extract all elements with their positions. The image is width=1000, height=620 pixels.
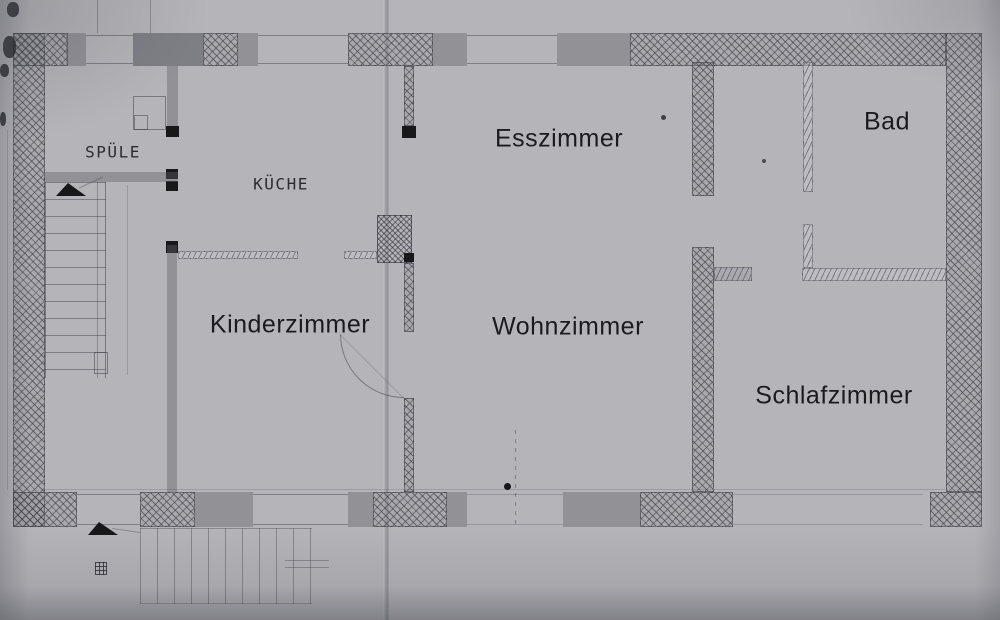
- window-top-4: [433, 33, 467, 66]
- ink-blot: [504, 483, 511, 490]
- room-label-kinderzimmer: Kinderzimmer: [210, 311, 370, 340]
- opening-bottom-door: [253, 494, 348, 525]
- wall-kinder-wohnzimmer: [404, 398, 414, 492]
- stair-rail-line: [285, 567, 329, 568]
- stair-newel: [94, 352, 108, 374]
- exterior-stairs-icon: [140, 528, 312, 604]
- wall-top-seg: [203, 33, 238, 66]
- wall-bottom-seg: [640, 492, 733, 527]
- wall-hall-kinderzimmer: [167, 245, 177, 492]
- scan-artifact: [0, 112, 6, 126]
- window-top-2: [133, 33, 203, 66]
- stair-stringer-line: [97, 182, 98, 378]
- window-top-5: [557, 33, 630, 66]
- room-label-kueche: KÜCHE: [253, 175, 309, 194]
- stair-rail-line: [285, 560, 329, 561]
- construction-line: [150, 0, 151, 33]
- opening-bottom-entry: [77, 494, 140, 525]
- paper-shading: [0, 0, 1000, 620]
- wall-bad-schlafzimmer: [802, 268, 946, 281]
- room-label-schlafzimmer: Schlafzimmer: [755, 382, 912, 411]
- window-top-3: [238, 33, 258, 66]
- wall-wc-bad-partition: [803, 62, 813, 192]
- wall-top-seg: [13, 33, 68, 66]
- dimension-line: [7, 130, 8, 490]
- scan-artifact: [3, 36, 16, 58]
- door-post: [402, 126, 416, 138]
- wall-kinder-wohnzimmer: [404, 263, 414, 332]
- window-top-1: [66, 33, 86, 66]
- wall-corner-bottom-right: [930, 492, 982, 527]
- opening-top-2: [258, 35, 348, 64]
- wall-bottom-seg: [13, 492, 77, 527]
- opening-top-3: [467, 35, 557, 64]
- wall-top-seg: [630, 33, 946, 66]
- door-post: [166, 126, 179, 137]
- wall-wc-bad-partition: [803, 224, 813, 268]
- door-post: [166, 181, 178, 191]
- sink-basin-icon: [134, 115, 148, 130]
- opening-bottom-faint-2: [733, 494, 923, 525]
- ink-dot: [661, 115, 666, 120]
- interior-stairs-icon: [45, 182, 106, 378]
- wall-right: [946, 33, 982, 492]
- axis-dashed-line: [515, 430, 516, 527]
- scan-artifact: [7, 2, 19, 17]
- window-bottom-2: [348, 492, 373, 527]
- wall-spuele-divider: [167, 66, 178, 128]
- floor-plan-scan: SPÜLE KÜCHE Esszimmer Bad Kinderzimmer W…: [0, 0, 1000, 620]
- construction-line: [45, 489, 945, 490]
- wall-esszimmer-right: [692, 62, 714, 196]
- dimension-line: [127, 185, 128, 375]
- wall-spuele-bottom: [45, 172, 178, 182]
- paper-fold-crease: [383, 0, 389, 620]
- wall-top-seg: [348, 33, 433, 66]
- room-label-wohnzimmer: Wohnzimmer: [492, 313, 644, 342]
- wall-bottom-seg: [373, 492, 447, 527]
- wall-bad-schlafzimmer: [714, 267, 752, 281]
- window-bottom-1: [195, 492, 253, 527]
- room-label-esszimmer: Esszimmer: [495, 125, 623, 154]
- wall-bottom-seg: [140, 492, 195, 527]
- room-label-bad: Bad: [864, 108, 910, 137]
- window-bottom-3: [447, 492, 467, 527]
- sink-unit-icon: [133, 96, 166, 130]
- opening-top-1: [86, 35, 133, 64]
- wall-kueche-kinderzimmer: [344, 251, 377, 259]
- wall-left: [13, 33, 45, 527]
- wall-kueche-esszimmer: [404, 66, 414, 126]
- window-bottom-4: [563, 492, 640, 527]
- scan-artifact: [0, 64, 9, 77]
- construction-line: [97, 0, 98, 33]
- wall-kueche-kinderzimmer: [178, 251, 298, 259]
- wall-wohn-schlafzimmer: [692, 247, 714, 492]
- grid-symbol-icon: [95, 562, 107, 575]
- room-label-spuele: SPÜLE: [85, 143, 141, 162]
- door-post: [404, 253, 414, 262]
- ink-dot: [762, 159, 766, 163]
